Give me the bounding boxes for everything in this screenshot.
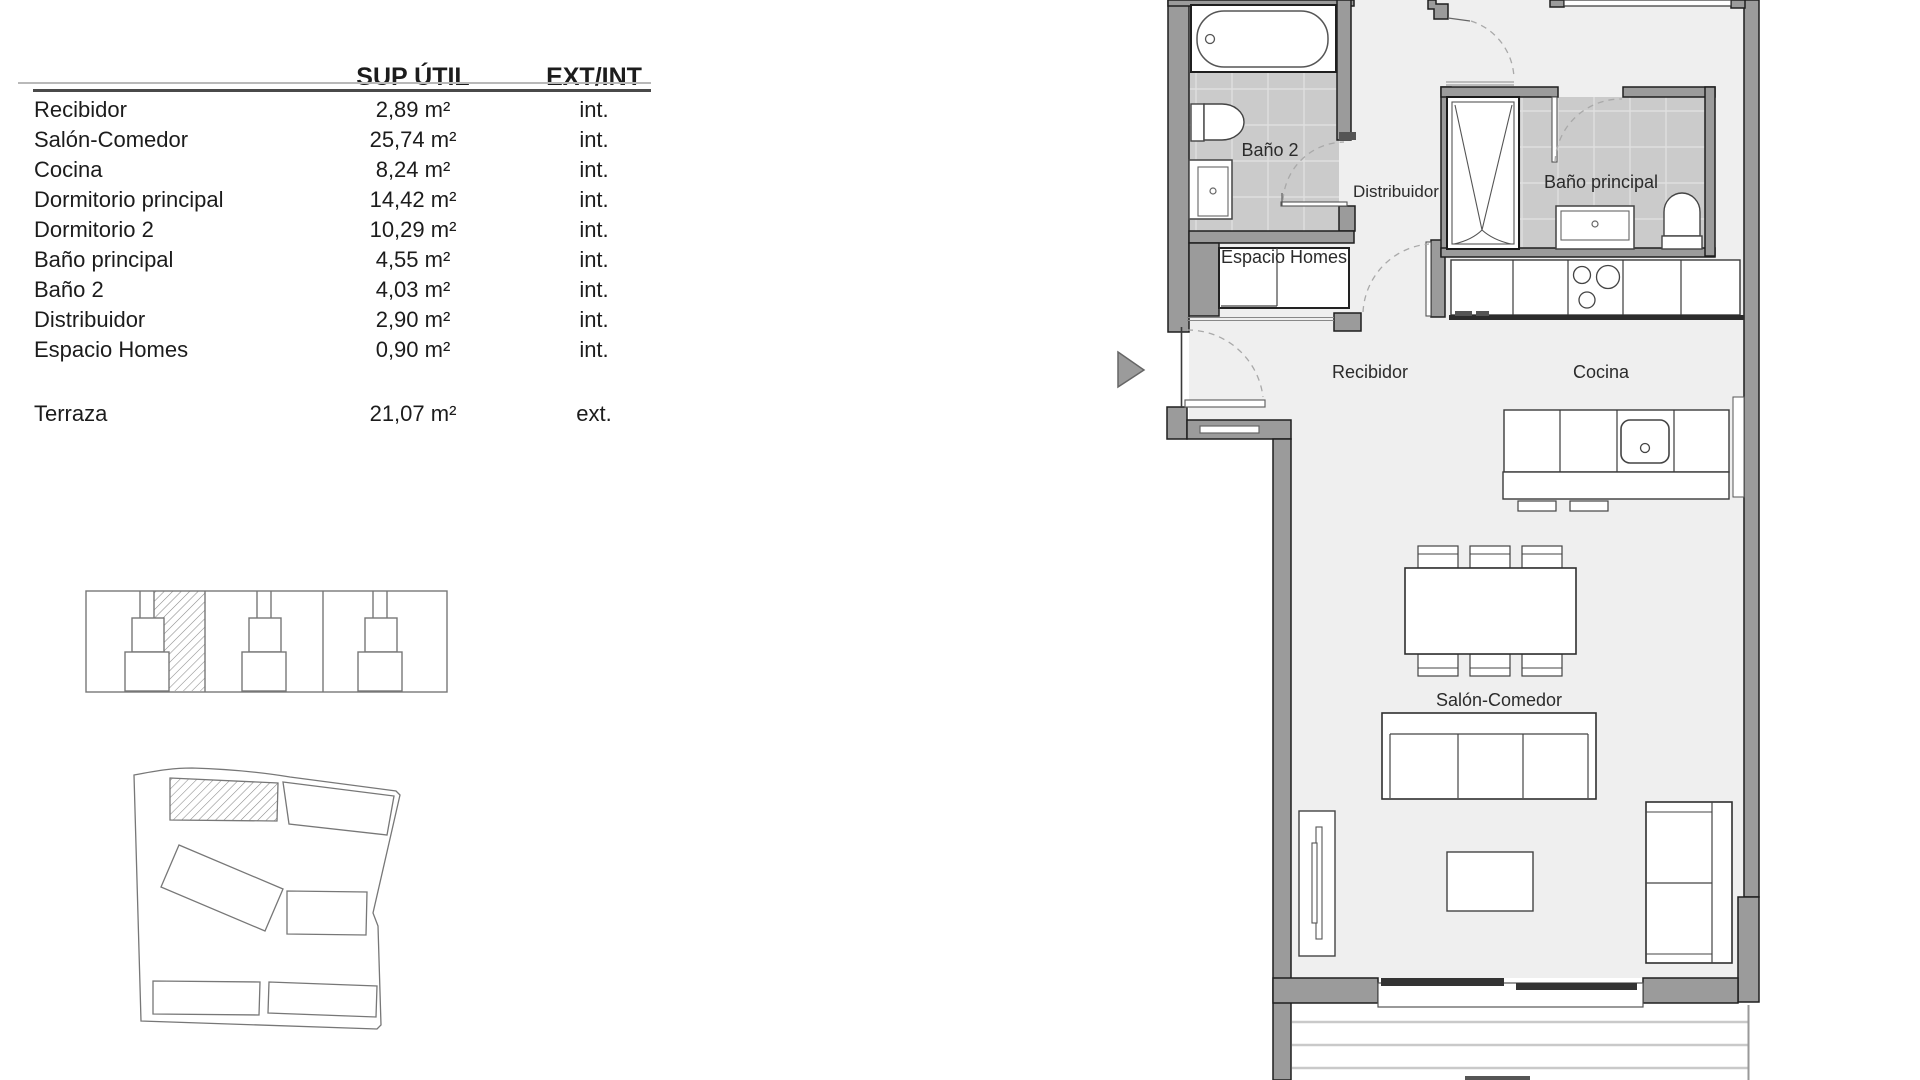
svg-text:Recibidor: Recibidor xyxy=(1332,362,1408,382)
svg-text:Salón-Comedor: Salón-Comedor xyxy=(1436,690,1562,710)
svg-text:Baño 2: Baño 2 xyxy=(1241,140,1298,160)
svg-text:Distribuidor: Distribuidor xyxy=(1353,182,1439,201)
svg-text:Espacio Homes: Espacio Homes xyxy=(1221,247,1347,267)
svg-text:Baño principal: Baño principal xyxy=(1544,172,1658,192)
svg-text:Cocina: Cocina xyxy=(1573,362,1630,382)
